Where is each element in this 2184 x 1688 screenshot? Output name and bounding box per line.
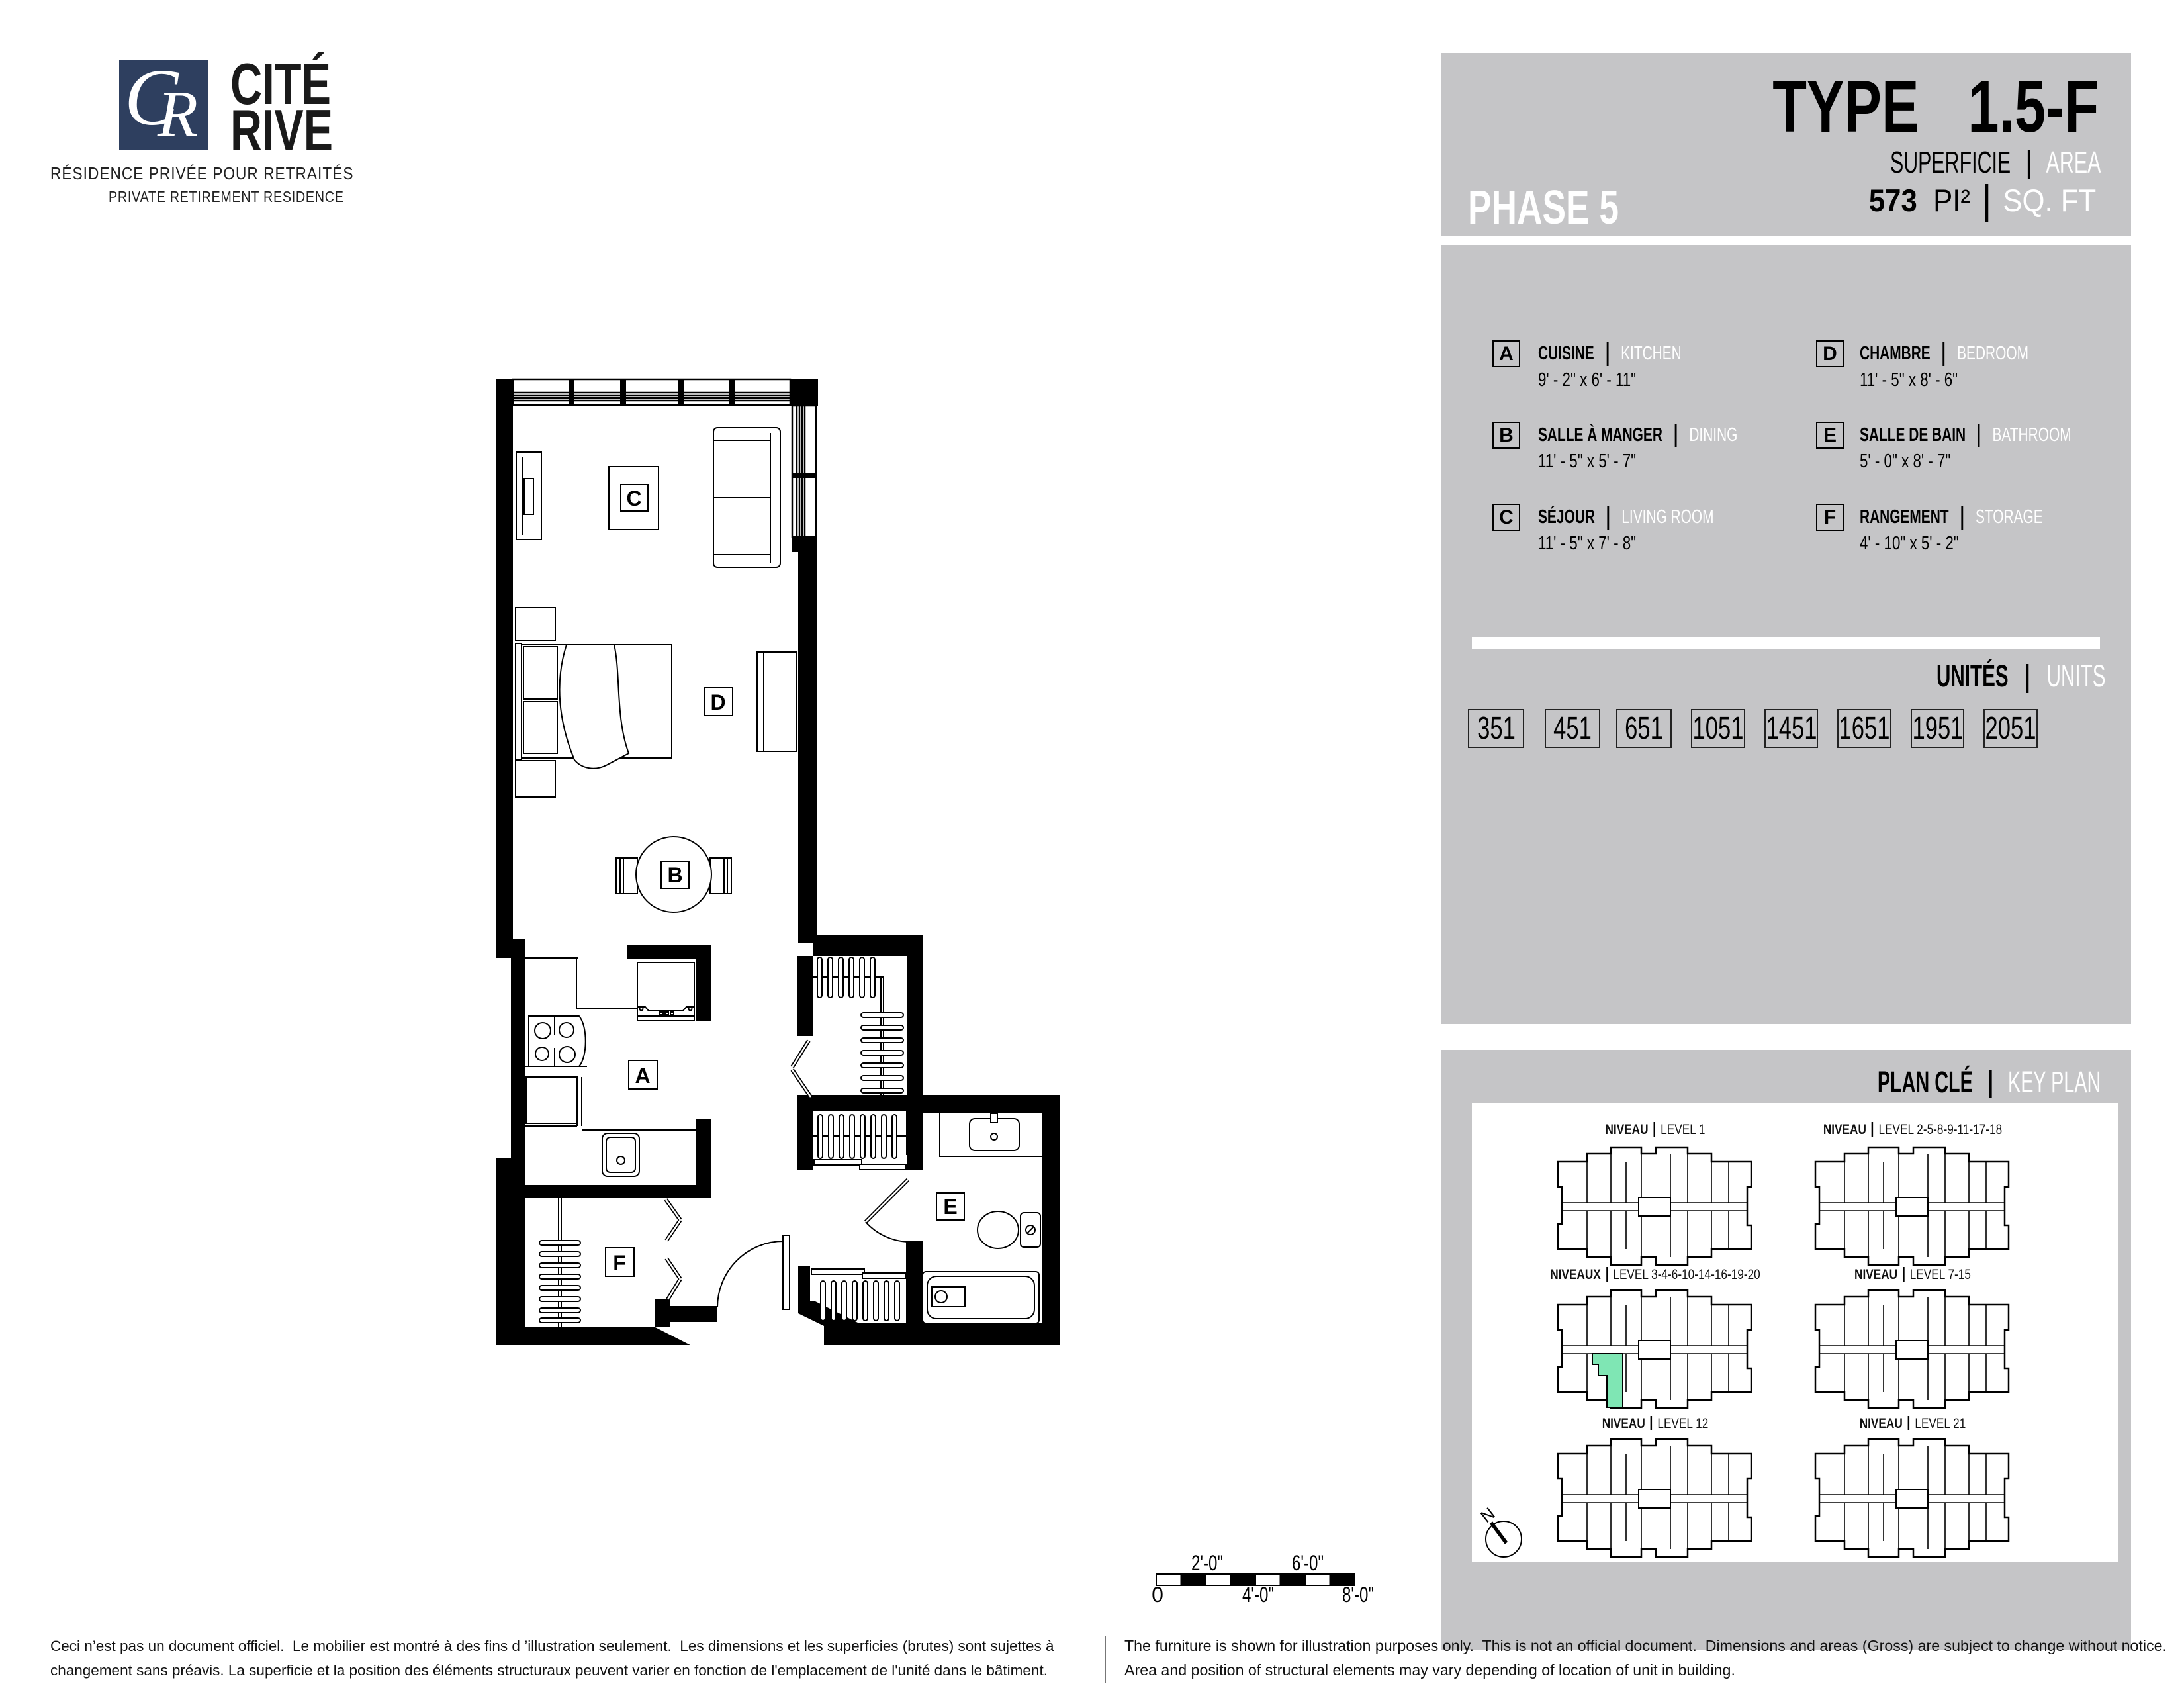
svg-text:2'-0": 2'-0": [1191, 1551, 1223, 1575]
svg-text:C: C: [626, 487, 641, 510]
svg-text:A: A: [635, 1064, 650, 1088]
svg-text:D: D: [710, 690, 725, 714]
svg-text:F: F: [613, 1251, 626, 1275]
svg-text:4'-0": 4'-0": [1242, 1583, 1274, 1607]
svg-text:0: 0: [1152, 1583, 1163, 1607]
svg-text:E: E: [943, 1195, 957, 1219]
svg-text:8'-0": 8'-0": [1342, 1583, 1374, 1607]
svg-text:6'-0": 6'-0": [1292, 1551, 1324, 1575]
svg-text:B: B: [667, 863, 682, 887]
